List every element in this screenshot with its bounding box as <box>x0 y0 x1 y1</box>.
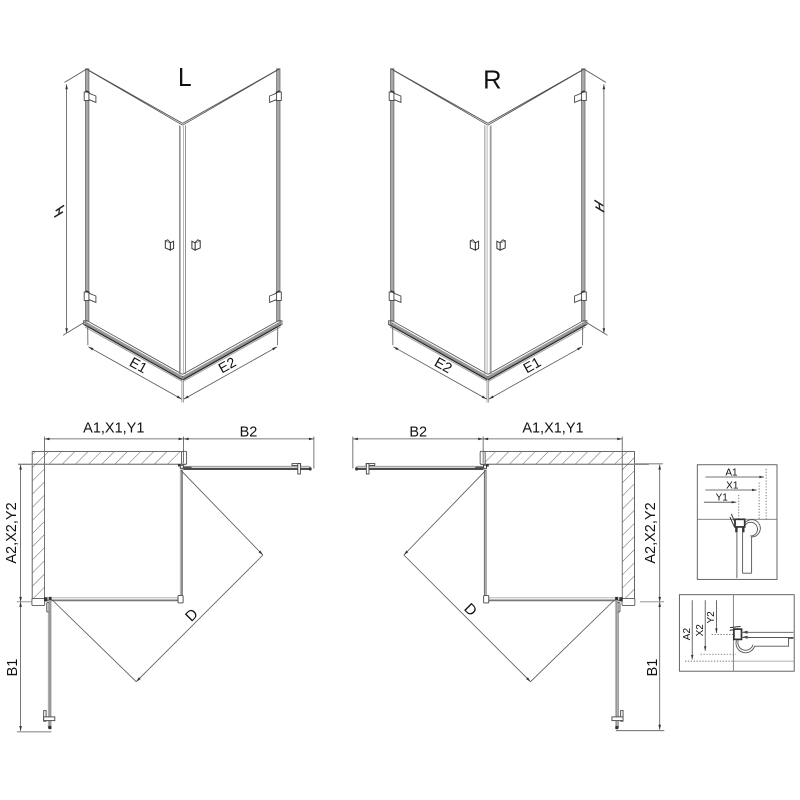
svg-text:B2: B2 <box>240 425 258 441</box>
svg-text:D: D <box>182 605 202 625</box>
svg-text:Y2: Y2 <box>706 611 717 624</box>
svg-text:A1: A1 <box>725 467 738 478</box>
svg-text:Y1: Y1 <box>716 493 729 504</box>
svg-text:B1: B1 <box>5 659 21 677</box>
svg-text:L: L <box>178 64 192 92</box>
svg-text:B2: B2 <box>409 425 427 441</box>
svg-text:A1,X1,Y1: A1,X1,Y1 <box>83 421 144 437</box>
svg-text:X1: X1 <box>726 480 739 491</box>
svg-text:A2,X2,Y2: A2,X2,Y2 <box>4 502 20 563</box>
svg-text:R: R <box>483 67 501 95</box>
svg-text:A1,X1,Y1: A1,X1,Y1 <box>522 421 583 437</box>
svg-text:X2: X2 <box>695 624 706 637</box>
svg-text:A2,X2,Y2: A2,X2,Y2 <box>643 502 659 563</box>
svg-text:A2: A2 <box>682 628 693 641</box>
svg-text:D: D <box>460 600 480 620</box>
svg-text:B1: B1 <box>645 659 661 677</box>
